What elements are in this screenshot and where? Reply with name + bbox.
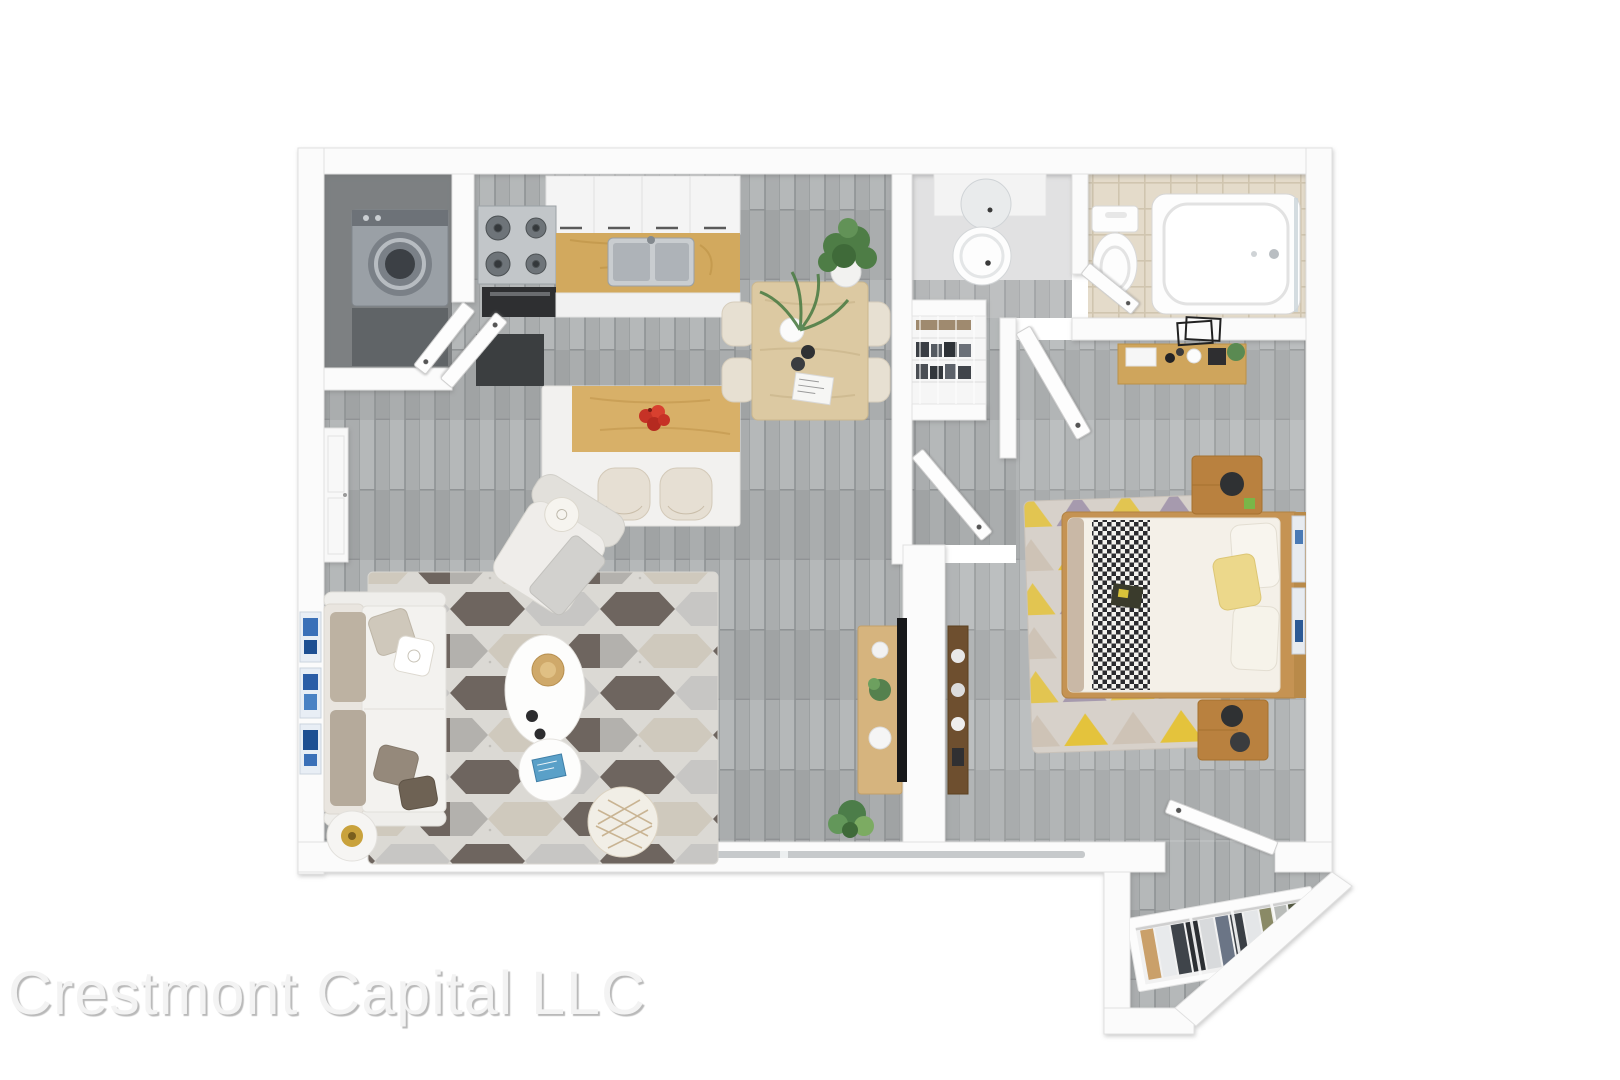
perfume bbox=[1176, 348, 1184, 356]
oven bbox=[482, 287, 558, 317]
perfume bbox=[1165, 353, 1175, 363]
green-accent bbox=[1244, 498, 1255, 509]
black-box bbox=[1208, 348, 1226, 365]
floor-plan-render bbox=[0, 0, 1620, 1080]
wall-right bbox=[1306, 148, 1332, 842]
counter-base bbox=[556, 293, 740, 317]
round-coffee-table bbox=[519, 739, 581, 801]
dining-chair bbox=[722, 358, 756, 402]
wall-bedroom-left bbox=[1000, 318, 1016, 458]
bed bbox=[1062, 512, 1306, 698]
duvet-fold bbox=[1068, 518, 1084, 692]
oven-handle bbox=[490, 292, 550, 296]
shelf-decor bbox=[951, 649, 965, 663]
glass-screen bbox=[1294, 198, 1298, 312]
wall-top bbox=[298, 148, 1332, 174]
tv bbox=[897, 618, 907, 782]
cup bbox=[526, 710, 538, 722]
upper-cabinets bbox=[546, 176, 740, 234]
pillow bbox=[398, 775, 439, 811]
linen-closet-wall-bottom bbox=[912, 404, 986, 420]
round-mirror bbox=[961, 179, 1011, 229]
sink-drain bbox=[985, 260, 991, 266]
seat-cushion bbox=[330, 612, 366, 702]
side-table-with-lamp bbox=[327, 811, 377, 861]
tray bbox=[1126, 348, 1156, 366]
linen-closet-wall-top bbox=[912, 300, 986, 316]
seat-cushion bbox=[330, 710, 366, 806]
kidney-coffee-table bbox=[505, 635, 585, 745]
bathtub bbox=[1152, 194, 1300, 314]
shelf-decor bbox=[952, 748, 964, 766]
bowl bbox=[801, 345, 815, 359]
tv-console bbox=[858, 626, 902, 794]
nightstand-bottom bbox=[1198, 700, 1268, 760]
wall-bottom-right bbox=[1275, 842, 1332, 872]
pillow bbox=[393, 635, 436, 678]
faucet bbox=[647, 236, 655, 244]
blue-artworks bbox=[300, 612, 321, 774]
table-lamp bbox=[1221, 705, 1243, 727]
watermark: Crestmont Capital LLC bbox=[8, 958, 646, 1028]
bowl bbox=[869, 727, 891, 749]
speaker bbox=[1230, 732, 1250, 752]
bedroom-wall-shelf bbox=[948, 626, 968, 794]
wall-bath-divider bbox=[1072, 174, 1088, 274]
window-divider bbox=[780, 851, 788, 858]
shelf-decor bbox=[951, 683, 965, 697]
bowl bbox=[791, 357, 805, 371]
closet-handle bbox=[343, 493, 347, 497]
cup bbox=[535, 729, 546, 740]
table-lamp bbox=[1220, 472, 1244, 496]
floor-plan-page: Crestmont Capital LLC bbox=[0, 0, 1620, 1080]
laundry-wall-right bbox=[452, 174, 474, 302]
ottoman-pouf bbox=[588, 787, 658, 857]
laundry-wall-bottom bbox=[324, 368, 452, 390]
wall-bath-bottom bbox=[1072, 318, 1306, 340]
tub-drain bbox=[1251, 251, 1257, 257]
bar-stool bbox=[660, 468, 712, 520]
shelf-decor bbox=[951, 717, 965, 731]
toilet-tank bbox=[1092, 206, 1138, 232]
nightstand-top bbox=[1192, 456, 1262, 514]
wall-dining-hall bbox=[892, 174, 912, 564]
yellow-pillow bbox=[1212, 553, 1262, 612]
dining-chair bbox=[722, 302, 756, 346]
magazine bbox=[792, 373, 833, 405]
linen-closet bbox=[912, 316, 986, 404]
tub-faucet bbox=[1269, 249, 1279, 259]
sofa bbox=[324, 592, 446, 826]
wall-art bbox=[1292, 516, 1305, 582]
pillow bbox=[1230, 605, 1279, 671]
vase bbox=[872, 642, 888, 658]
wall-living-bedroom bbox=[903, 545, 945, 842]
plant bbox=[1227, 343, 1245, 361]
jar bbox=[1187, 349, 1201, 363]
